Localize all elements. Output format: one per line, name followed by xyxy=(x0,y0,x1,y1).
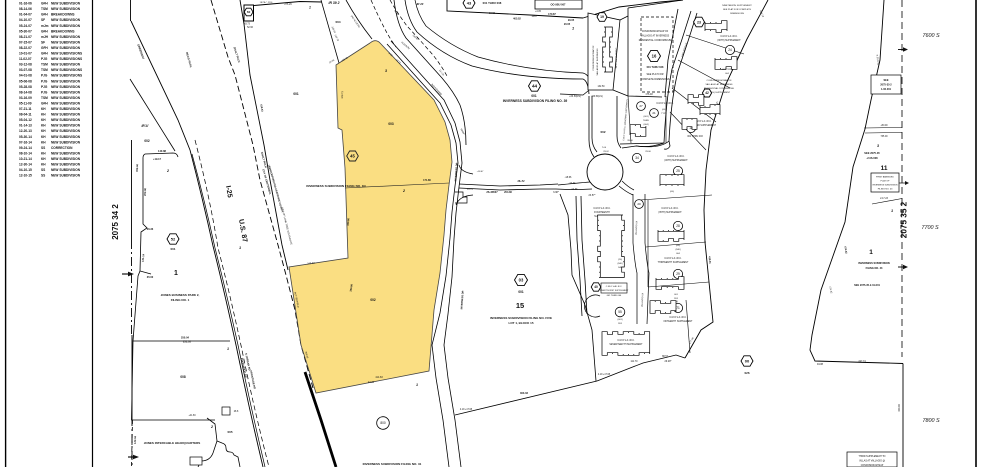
svg-text:+19.17: +19.17 xyxy=(153,157,162,161)
svg-text:05-06-08: 05-06-08 xyxy=(19,79,32,83)
svg-text:SF: SF xyxy=(41,41,45,45)
svg-text:1: 1 xyxy=(227,347,229,351)
svg-text:C.M.O.V.A.I.R.C.: C.M.O.V.A.I.R.C. xyxy=(669,316,687,319)
svg-text:001 TYPL: 001 TYPL xyxy=(722,69,732,71)
svg-text:-18.66: -18.66 xyxy=(565,176,572,179)
svg-text:2: 2 xyxy=(210,425,213,429)
svg-text:12-20-13: 12-20-13 xyxy=(19,129,32,133)
svg-text:(004): (004) xyxy=(643,124,648,126)
svg-text:PLAT OF: PLAT OF xyxy=(881,180,891,183)
svg-text:08-21-07: 08-21-07 xyxy=(19,35,32,39)
svg-text:121.14: 121.14 xyxy=(141,253,146,262)
svg-text:CONDOMINIUM MAP: CONDOMINIUM MAP xyxy=(861,464,884,467)
svg-text:GFH: GFH xyxy=(41,13,48,17)
svg-text:05-30-14: 05-30-14 xyxy=(19,135,32,139)
svg-text:1: 1 xyxy=(891,209,893,213)
svg-text:7800 S: 7800 S xyxy=(922,418,939,424)
svg-text:001 THRU 004: 001 THRU 004 xyxy=(607,295,622,297)
svg-text:400.00: 400.00 xyxy=(898,404,901,412)
svg-text:GFH: GFH xyxy=(41,29,48,33)
svg-text:800: 800 xyxy=(380,421,386,425)
svg-text:10-01-07: 10-01-07 xyxy=(19,52,32,56)
svg-text:276.26: 276.26 xyxy=(284,3,292,6)
svg-text:05-28-08: 05-28-08 xyxy=(19,85,32,89)
svg-text:INVERNESS SUBDIVISION FILING N: INVERNESS SUBDIVISION FILING NO. 1N xyxy=(306,184,365,188)
svg-text:(00): (00) xyxy=(670,191,674,193)
svg-text:C.M.O.V.A.I.R.C.: C.M.O.V.A.I.R.C. xyxy=(617,339,635,342)
svg-text:3: 3 xyxy=(877,144,879,148)
svg-text:17672: 17672 xyxy=(467,189,474,191)
svg-text:29: 29 xyxy=(676,272,680,276)
svg-text:SEVENTEENTH SUPPLEMENT: SEVENTEENTH SUPPLEMENT xyxy=(609,344,643,346)
svg-text:09-24-14: 09-24-14 xyxy=(19,146,32,150)
svg-text:NEW SUBDIVISIONS: NEW SUBDIVISIONS xyxy=(51,52,82,56)
svg-text:CONDOMINIUM MAP OF: CONDOMINIUM MAP OF xyxy=(706,79,732,82)
svg-text:25: 25 xyxy=(676,169,680,173)
svg-text:1: 1 xyxy=(239,246,241,250)
svg-text:16: 16 xyxy=(652,54,657,59)
svg-text:2075-35-2: 2075-35-2 xyxy=(880,84,892,87)
svg-text:348.73: 348.73 xyxy=(341,91,344,99)
svg-text:NEW SUBDIVISION: NEW SUBDIVISION xyxy=(51,35,81,39)
svg-text:1: 1 xyxy=(869,249,873,256)
svg-text:INVERNESS SUBDIVISION: INVERNESS SUBDIVISION xyxy=(858,262,890,265)
svg-text:NEW SUBDIVISION: NEW SUBDIVISION xyxy=(51,174,81,178)
svg-text:(49TH) SUPPLEMENT: (49TH) SUPPLEMENT xyxy=(664,160,688,162)
svg-text:NEW SUBDIVISION: NEW SUBDIVISION xyxy=(51,79,81,83)
svg-text:TSM: TSM xyxy=(41,7,48,11)
svg-text:26.33: 26.33 xyxy=(147,227,154,231)
svg-text:NEW SUBDIVISION: NEW SUBDIVISION xyxy=(51,163,81,167)
svg-text:40: 40 xyxy=(594,285,598,289)
svg-text:(35TH) SUPPLEMENT: (35TH) SUPPLEMENT xyxy=(658,212,682,214)
svg-text:VILLAS AT VALLAGIO @: VILLAS AT VALLAGIO @ xyxy=(859,460,885,463)
svg-text:KH: KH xyxy=(41,113,46,117)
svg-text:KH: KH xyxy=(41,124,46,128)
svg-text:05-11-09: 05-11-09 xyxy=(19,102,32,106)
svg-text:39.06: 39.06 xyxy=(627,140,633,142)
svg-text:NEW SUBDIVISIONS: NEW SUBDIVISIONS xyxy=(51,57,82,61)
svg-text:1-06-001: 1-06-001 xyxy=(881,88,892,91)
svg-text:KH: KH xyxy=(41,129,46,133)
svg-text:(00): (00) xyxy=(662,109,666,111)
svg-text:TSM: TSM xyxy=(41,96,48,100)
svg-text:VALLAGIO LN: VALLAGIO LN xyxy=(641,292,645,307)
svg-text:INVERNESS SUBDIVISION FILING N: INVERNESS SUBDIVISION FILING NO. 39 xyxy=(503,99,568,103)
svg-text:DIMENSIONS: DIMENSIONS xyxy=(730,13,744,15)
svg-text:003: 003 xyxy=(388,122,394,126)
svg-text:11: 11 xyxy=(881,165,888,172)
svg-text:08-14-06: 08-14-06 xyxy=(19,7,32,11)
svg-text:45: 45 xyxy=(350,154,355,159)
svg-text:20: 20 xyxy=(637,202,641,206)
svg-text:1: 1 xyxy=(572,27,574,31)
svg-text:NINETEENTH SUPPLEMENT: NINETEENTH SUPPLEMENT xyxy=(722,5,752,7)
svg-text:05-24-07: 05-24-07 xyxy=(19,24,32,28)
svg-text:TYPL: TYPL xyxy=(661,113,667,115)
svg-text:176.48: 176.48 xyxy=(645,93,653,96)
svg-text:TSM: TSM xyxy=(41,63,48,67)
svg-text:NEW SUBDIVISION: NEW SUBDIVISION xyxy=(51,7,81,11)
svg-text:FILING NO. 43: FILING NO. 43 xyxy=(878,189,893,191)
svg-text:23: 23 xyxy=(697,20,701,24)
svg-text:CORRECTION: CORRECTION xyxy=(51,146,73,150)
svg-text:08-14-08: 08-14-08 xyxy=(19,90,32,94)
svg-text:KH: KH xyxy=(41,118,46,122)
svg-text:52.66: 52.66 xyxy=(247,27,253,29)
svg-text:COMPLETE DIMENSIONS: COMPLETE DIMENSIONS xyxy=(641,78,670,81)
svg-text:1: 1 xyxy=(309,6,311,10)
svg-text:04-10-07: 04-10-07 xyxy=(19,18,32,22)
svg-text:KH: KH xyxy=(41,140,46,144)
svg-text:21: 21 xyxy=(652,111,656,115)
svg-text:-12.33: -12.33 xyxy=(571,188,578,191)
svg-text:NEW SUBDIVISION: NEW SUBDIVISION xyxy=(51,168,81,172)
svg-text:TSM: TSM xyxy=(41,68,48,72)
svg-text:44.23: 44.23 xyxy=(368,381,375,384)
svg-text:-10.33: -10.33 xyxy=(569,182,576,185)
svg-text:NEW SUBDIVISION: NEW SUBDIVISION xyxy=(51,118,81,122)
svg-text:KH: KH xyxy=(41,163,46,167)
svg-text:303.03: 303.03 xyxy=(520,391,528,395)
svg-text:PJG: PJG xyxy=(41,74,48,78)
svg-text:01-14-13: 01-14-13 xyxy=(19,124,32,128)
svg-text:THIRD SUPPLEMENT TO: THIRD SUPPLEMENT TO xyxy=(859,456,886,458)
svg-text:15: 15 xyxy=(516,301,524,310)
svg-text:C.M.O.V.A.I.R.C.: C.M.O.V.A.I.R.C. xyxy=(606,285,623,288)
svg-text:GFH: GFH xyxy=(41,46,48,50)
svg-text:08-04-11: 08-04-11 xyxy=(19,113,32,117)
svg-text:INVERNESS SUBDIVISION: INVERNESS SUBDIVISION xyxy=(872,185,898,187)
svg-text:BREAKDOWNS: BREAKDOWNS xyxy=(51,29,75,33)
svg-text:03-16-09: 03-16-09 xyxy=(19,96,32,100)
svg-text:(940): (940) xyxy=(675,249,680,251)
svg-text:001 THRU 008: 001 THRU 008 xyxy=(483,1,502,5)
svg-text:(36TH) SUPPLEMENT: (36TH) SUPPLEMENT xyxy=(717,40,741,42)
svg-text:247.74: 247.74 xyxy=(858,360,866,363)
svg-text:35.00: 35.00 xyxy=(147,275,154,279)
svg-text:001: 001 xyxy=(518,290,524,294)
svg-text:PJG: PJG xyxy=(41,57,48,61)
svg-text:IR 39 2: IR 39 2 xyxy=(329,1,340,5)
svg-text:10-21-14: 10-21-14 xyxy=(19,157,32,161)
svg-text:SEE 2075-35: SEE 2075-35 xyxy=(864,151,880,155)
svg-text:NEW SUBDIVISION: NEW SUBDIVISION xyxy=(51,135,81,139)
svg-text:NEW SUBDIVISION: NEW SUBDIVISION xyxy=(51,107,81,111)
svg-text:12-10-15: 12-10-15 xyxy=(19,174,32,178)
svg-text:GFH: GFH xyxy=(41,102,48,106)
svg-text:OO 9BU 007: OO 9BU 007 xyxy=(551,3,567,7)
svg-text:NEW SUBDIVISION: NEW SUBDIVISION xyxy=(51,63,81,67)
svg-text:140.88: 140.88 xyxy=(158,149,166,153)
svg-text:00: 00 xyxy=(745,358,750,363)
svg-text:2: 2 xyxy=(166,169,169,173)
svg-text:42: 42 xyxy=(705,91,709,95)
svg-text:008: 008 xyxy=(180,375,186,379)
svg-text:01-16-06: 01-16-06 xyxy=(19,2,32,6)
svg-text:SS: SS xyxy=(41,174,45,178)
svg-text:NEW SUBDIVISION: NEW SUBDIVISION xyxy=(51,2,81,6)
svg-text:002: 002 xyxy=(144,139,150,143)
svg-text:123.04: 123.04 xyxy=(133,435,137,444)
svg-text:309.60: 309.60 xyxy=(135,163,139,172)
svg-text:NEW SUBDIVISION: NEW SUBDIVISION xyxy=(51,96,81,100)
svg-text:250.04: 250.04 xyxy=(181,336,189,340)
svg-text:GFH: GFH xyxy=(41,52,48,56)
svg-text:111.70: 111.70 xyxy=(631,360,639,363)
svg-text:29.02: 29.02 xyxy=(603,151,609,153)
svg-text:04-10-15: 04-10-15 xyxy=(19,168,32,172)
svg-text:CONDOMINIUM MAP OF: CONDOMINIUM MAP OF xyxy=(592,45,595,71)
svg-text:001 THRU 048: 001 THRU 048 xyxy=(647,66,664,69)
svg-text:PJG: PJG xyxy=(41,79,48,83)
svg-text:VALLAGIO AT INVERNESS: VALLAGIO AT INVERNESS xyxy=(641,35,670,38)
svg-text:11-02-07: 11-02-07 xyxy=(19,57,32,61)
svg-text:07-16-14: 07-16-14 xyxy=(19,140,32,144)
svg-text:2-17.23: 2-17.23 xyxy=(880,198,889,200)
svg-text:NEW SUBDIVISION: NEW SUBDIVISION xyxy=(51,46,81,50)
svg-text:FILING NO. 43: FILING NO. 43 xyxy=(866,267,883,270)
svg-text:405.02: 405.02 xyxy=(513,18,521,21)
svg-text:28.8: 28.8 xyxy=(234,411,239,413)
svg-text:FILING NO. 1: FILING NO. 1 xyxy=(171,298,190,302)
svg-text:24: 24 xyxy=(728,48,732,52)
svg-text:mJH: mJH xyxy=(41,35,49,39)
svg-text:18 PA *, PO6: 18 PA *, PO6 xyxy=(260,1,274,4)
svg-text:735.00: 735.00 xyxy=(880,136,888,138)
svg-text:05-30-07: 05-30-07 xyxy=(19,29,32,33)
svg-text:4.19 +17.68: 4.19 +17.68 xyxy=(460,409,473,411)
svg-text:19: 19 xyxy=(600,15,604,19)
svg-text:(001): (001) xyxy=(617,319,622,321)
svg-text:KH: KH xyxy=(41,107,46,111)
svg-text:27: 27 xyxy=(639,104,643,108)
svg-text:C.M.O.V.A.I.R.C.: C.M.O.V.A.I.R.C. xyxy=(664,257,682,260)
svg-text:PJG: PJG xyxy=(41,90,48,94)
svg-text:25+68537: 25+68537 xyxy=(486,191,498,194)
svg-text:VALLAGIO AT INVERNESS: VALLAGIO AT INVERNESS xyxy=(596,48,599,76)
svg-text:+63.50(LS): +63.50(LS) xyxy=(569,96,581,98)
svg-text:JONES INTERCABLE HEADQUARTERS: JONES INTERCABLE HEADQUARTERS xyxy=(144,441,201,445)
svg-text:SS: SS xyxy=(41,146,45,150)
svg-text:163.50(LS): 163.50(LS) xyxy=(591,96,603,98)
svg-text:44: 44 xyxy=(532,84,538,89)
svg-text:NEW SUBDIVISION: NEW SUBDIVISION xyxy=(51,124,81,128)
svg-text:29.06: 29.06 xyxy=(645,151,651,153)
svg-text:414.83: 414.83 xyxy=(375,376,383,379)
svg-text:-2-06-008: -2-06-008 xyxy=(866,156,878,160)
svg-text:43.73: 43.73 xyxy=(244,24,250,26)
svg-text:NEW SUBDIVISIONS: NEW SUBDIVISIONS xyxy=(51,74,82,78)
svg-text:KH: KH xyxy=(41,135,46,139)
svg-text:1: 1 xyxy=(174,270,178,277)
svg-text:NEW SUBDIVISION: NEW SUBDIVISION xyxy=(51,90,81,94)
svg-text:251.10: 251.10 xyxy=(183,340,191,344)
svg-text:NEW SUBDIVISION: NEW SUBDIVISION xyxy=(51,85,81,89)
svg-text:+41.83: +41.83 xyxy=(188,415,196,417)
svg-text:3: 3 xyxy=(385,69,387,73)
svg-text:171.86: 171.86 xyxy=(423,179,431,182)
svg-text:+50.00: +50.00 xyxy=(880,125,888,127)
svg-text:NEW SUBDIVISION: NEW SUBDIVISION xyxy=(51,102,81,106)
svg-text:203.80: 203.80 xyxy=(143,187,147,196)
svg-text:KH: KH xyxy=(41,157,46,161)
svg-text:132.50: 132.50 xyxy=(597,86,605,88)
svg-text:IR’A’: IR’A’ xyxy=(141,124,148,128)
svg-text:71: 71 xyxy=(676,306,680,310)
svg-text:NEW SUBDIVISION: NEW SUBDIVISION xyxy=(51,157,81,161)
svg-text:VALLAGIO LN: VALLAGIO LN xyxy=(635,220,639,235)
svg-text:SEE: SEE xyxy=(883,79,888,82)
svg-text:07-15-07: 07-15-07 xyxy=(19,41,32,45)
svg-text:C.M.O.V.A.I.R.C.: C.M.O.V.A.I.R.C. xyxy=(656,102,674,105)
svg-text:+4.05: +4.05 xyxy=(535,11,542,13)
svg-text:LOT 1, BLOCK 15: LOT 1, BLOCK 15 xyxy=(508,321,533,325)
svg-text:(940): (940) xyxy=(617,263,622,265)
svg-text:VALLAGIO AT INVERNESS: VALLAGIO AT INVERNESS xyxy=(706,83,734,86)
svg-text:28: 28 xyxy=(676,224,680,228)
svg-text:INVERNESS SUBDIVISION FILING N: INVERNESS SUBDIVISION FILING NO. 31 xyxy=(363,462,422,466)
svg-text:26+72: 26+72 xyxy=(517,180,525,183)
svg-text:01-04-07: 01-04-07 xyxy=(19,13,32,17)
svg-text:NEW SUBDIVISION: NEW SUBDIVISION xyxy=(51,129,81,133)
svg-text:60: 60 xyxy=(247,10,251,14)
svg-text:FIFTEENTH SUPPLEMENT: FIFTEENTH SUPPLEMENT xyxy=(664,321,693,323)
svg-text:94.88: 94.88 xyxy=(817,363,824,366)
svg-text:55: 55 xyxy=(618,310,622,314)
svg-text:005: 005 xyxy=(227,430,232,434)
svg-text:002: 002 xyxy=(600,130,605,134)
svg-text:07-21-11: 07-21-11 xyxy=(19,107,32,111)
svg-text:23.57*: 23.57* xyxy=(589,194,596,197)
svg-text:C.M.O.V.A.I.R.C.: C.M.O.V.A.I.R.C. xyxy=(661,207,679,210)
svg-text:001 THRU 003: 001 THRU 003 xyxy=(687,136,703,138)
svg-text:08-10-14: 08-10-14 xyxy=(19,151,32,155)
svg-text:001: 001 xyxy=(293,92,299,96)
svg-text:GFH: GFH xyxy=(41,2,48,6)
svg-text:20.05: 20.05 xyxy=(564,23,571,26)
svg-text:1: 1 xyxy=(416,383,418,387)
svg-text:2: 2 xyxy=(402,189,405,193)
svg-text:001: 001 xyxy=(170,247,175,251)
svg-text:39TH SUPPLEMENT: 39TH SUPPLEMENT xyxy=(616,47,618,68)
svg-text:03-12-08: 03-12-08 xyxy=(19,63,32,67)
svg-text:SS: SS xyxy=(41,168,45,172)
svg-text:34: 34 xyxy=(635,156,639,160)
svg-text:C.M.O.V.A.I.R.C.: C.M.O.V.A.I.R.C. xyxy=(667,155,685,158)
svg-text:BREAKDOWNS: BREAKDOWNS xyxy=(51,13,75,17)
svg-text:04-01-08: 04-01-08 xyxy=(19,74,32,78)
svg-text:4.19 +17.68: 4.19 +17.68 xyxy=(598,374,611,376)
svg-text:THIRTEENTH SUPPLEMENT: THIRTEENTH SUPPLEMENT xyxy=(658,262,689,264)
svg-text:C.M.O.V.A.I.R.C.: C.M.O.V.A.I.R.C. xyxy=(593,207,611,210)
svg-text:+18.67: +18.67 xyxy=(477,171,485,173)
svg-text:NEW SUBDIVISION: NEW SUBDIVISION xyxy=(51,140,81,144)
svg-text:29.29*: 29.29* xyxy=(665,360,672,363)
svg-text:004: 004 xyxy=(335,20,340,24)
svg-text:03-07-08: 03-07-08 xyxy=(19,68,32,72)
svg-text:FIRST AMENDED: FIRST AMENDED xyxy=(876,176,894,179)
svg-text:7700 S: 7700 S xyxy=(921,225,938,231)
svg-text:170.87: 170.87 xyxy=(548,13,556,16)
svg-text:88.57: 88.57 xyxy=(662,356,668,358)
svg-text:SEE PLAT FOR COMPLETE: SEE PLAT FOR COMPLETE xyxy=(723,8,752,11)
svg-text:NEW SUBDIVISIONS: NEW SUBDIVISIONS xyxy=(51,68,82,72)
svg-text:026: 026 xyxy=(744,371,749,375)
svg-text:KH: KH xyxy=(41,151,46,155)
svg-text:12-30-14: 12-30-14 xyxy=(19,163,32,167)
svg-text:IR 20: IR 20 xyxy=(417,2,424,6)
svg-text:INVERNESS SUBDIVISION FILING N: INVERNESS SUBDIVISION FILING NO. FIVE xyxy=(490,316,552,320)
svg-text:SEE PLAT FOR: SEE PLAT FOR xyxy=(647,73,664,76)
svg-text:NEW SUBDIVISION: NEW SUBDIVISION xyxy=(51,41,81,45)
svg-text:6.98*: 6.98* xyxy=(553,191,559,194)
svg-text:C.M.O.V.A.I.R.C.: C.M.O.V.A.I.R.C. xyxy=(720,35,738,38)
svg-text:FOURTEENTH: FOURTEENTH xyxy=(594,212,610,214)
svg-text:PJG: PJG xyxy=(41,85,48,89)
svg-text:1453: 1453 xyxy=(531,16,537,18)
svg-text:05-04-12: 05-04-12 xyxy=(19,118,32,122)
svg-text:002: 002 xyxy=(370,298,376,302)
svg-text:(00): (00) xyxy=(676,245,680,247)
svg-text:mJm: mJm xyxy=(41,24,49,28)
svg-text:08-22-07: 08-22-07 xyxy=(19,46,32,50)
svg-text:JONES BUSINESS PARK 2,: JONES BUSINESS PARK 2, xyxy=(161,293,200,297)
svg-text:SEE 2075-35-2-31-001: SEE 2075-35-2-31-001 xyxy=(854,284,880,287)
svg-text:TWENTY-FIRST SUPPLEMENT: TWENTY-FIRST SUPPLEMENT xyxy=(600,290,630,292)
svg-text:001: 001 xyxy=(531,94,537,98)
svg-text:52: 52 xyxy=(171,236,176,241)
svg-text:7600 S: 7600 S xyxy=(922,33,939,39)
svg-text:NEW SUBDIVISION: NEW SUBDIVISION xyxy=(51,151,81,155)
svg-text:NEW SUBDIVISION: NEW SUBDIVISION xyxy=(51,113,81,117)
svg-text:2075 34 2: 2075 34 2 xyxy=(111,204,120,240)
svg-text:204.38: 204.38 xyxy=(504,191,512,194)
svg-text:THRU: THRU xyxy=(643,120,649,122)
svg-text:(001): (001) xyxy=(643,116,648,118)
svg-text:RESIDENTIAL CONDOMINIUM: RESIDENTIAL CONDOMINIUM xyxy=(639,39,672,42)
svg-text:CONDOMINIUM MAP OF: CONDOMINIUM MAP OF xyxy=(642,30,669,33)
svg-text:NEW SUBDIVISION: NEW SUBDIVISION xyxy=(51,24,81,28)
svg-text:2075 35 2: 2075 35 2 xyxy=(900,201,909,238)
svg-text:NEW SUBDIVISION: NEW SUBDIVISION xyxy=(51,18,81,22)
svg-text:SF: SF xyxy=(41,18,45,22)
svg-text:03: 03 xyxy=(519,278,524,283)
svg-text:(20): (20) xyxy=(618,259,622,261)
svg-text:43: 43 xyxy=(467,0,472,5)
svg-text:29.05: 29.05 xyxy=(568,19,575,22)
